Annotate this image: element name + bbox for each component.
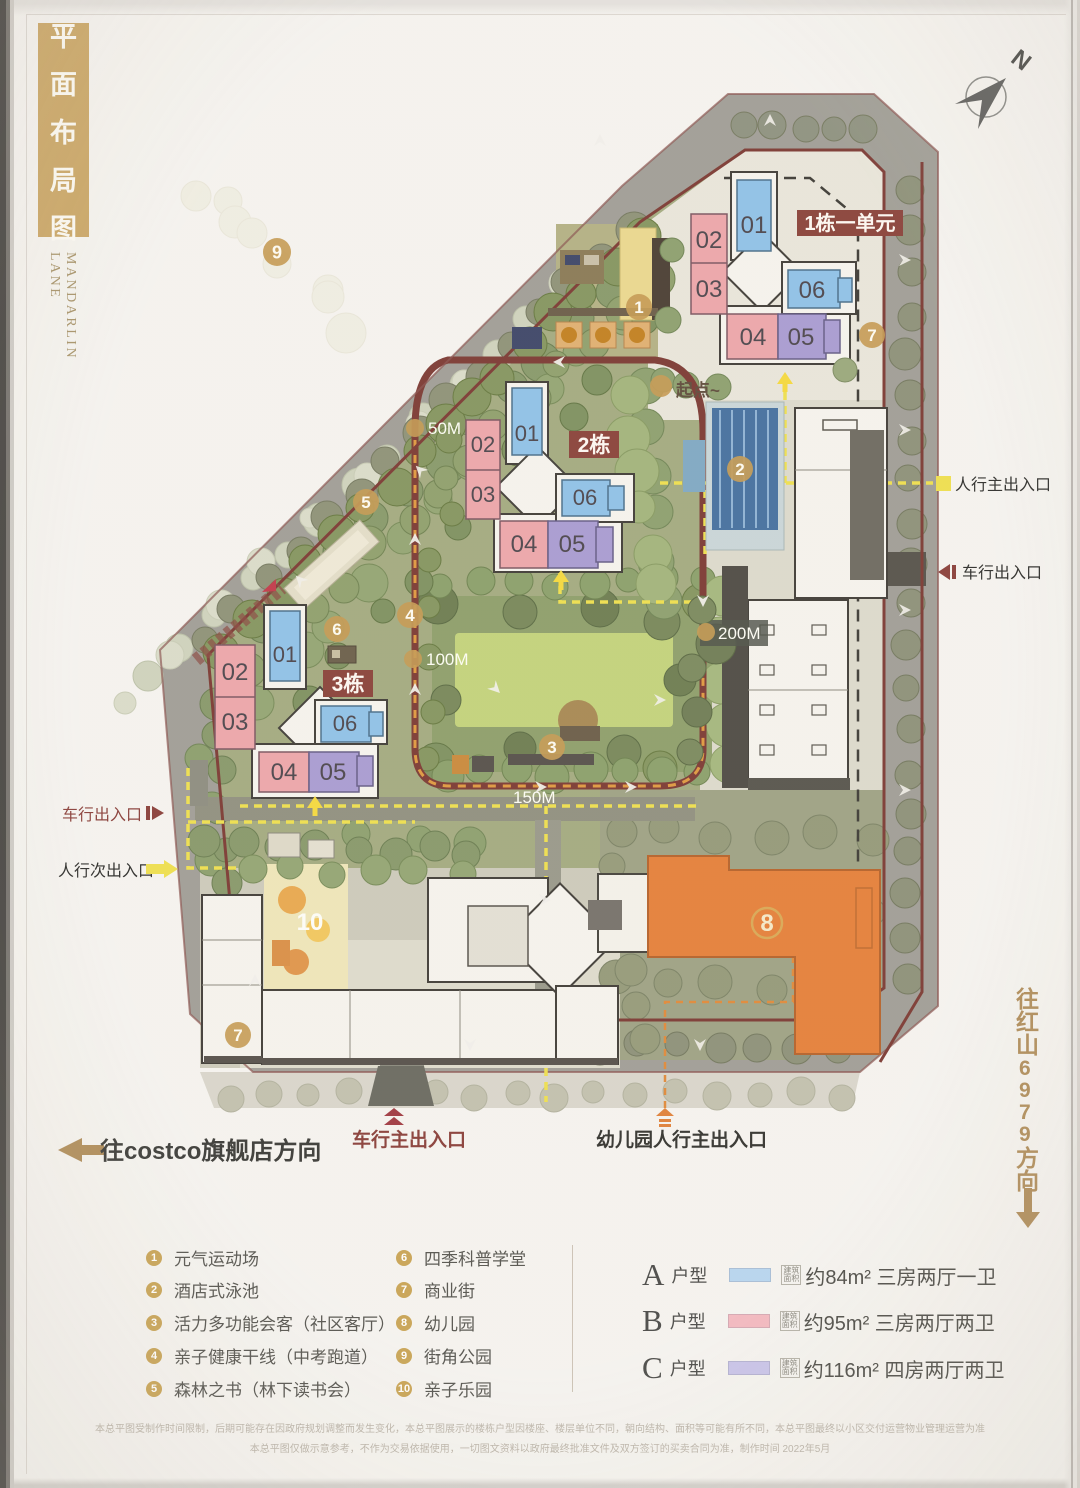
svg-text:起点~: 起点~	[675, 380, 720, 400]
svg-text:100M: 100M	[426, 650, 469, 669]
svg-text:05: 05	[320, 759, 347, 786]
svg-text:01: 01	[515, 421, 539, 446]
svg-text:01: 01	[741, 212, 768, 239]
svg-text:车行出入口: 车行出入口	[962, 564, 1042, 582]
svg-text:8: 8	[760, 910, 773, 937]
svg-text:05: 05	[559, 531, 586, 558]
svg-text:6: 6	[332, 620, 341, 639]
svg-text:2栋: 2栋	[578, 433, 611, 457]
svg-text:N: N	[1006, 44, 1036, 76]
svg-text:02: 02	[696, 227, 723, 254]
svg-text:7: 7	[867, 326, 876, 345]
svg-text:4: 4	[405, 606, 415, 625]
svg-text:2: 2	[735, 460, 744, 479]
svg-text:02: 02	[471, 432, 495, 457]
svg-text:车行出入口: 车行出入口	[62, 806, 142, 824]
svg-text:200M: 200M	[718, 624, 761, 643]
svg-text:03: 03	[222, 709, 249, 736]
svg-text:10: 10	[297, 909, 324, 936]
svg-text:5: 5	[361, 493, 370, 512]
svg-text:往costco旗舰店方向: 往costco旗舰店方向	[100, 1137, 321, 1165]
svg-text:3栋: 3栋	[332, 672, 365, 696]
svg-text:05: 05	[788, 324, 815, 351]
svg-text:06: 06	[799, 277, 826, 304]
svg-text:06: 06	[333, 711, 357, 736]
svg-text:幼儿园人行主出入口: 幼儿园人行主出入口	[596, 1128, 767, 1151]
svg-text:03: 03	[471, 482, 495, 507]
svg-text:人行主出入口: 人行主出入口	[955, 476, 1051, 494]
svg-text:150M: 150M	[513, 788, 556, 807]
svg-text:03: 03	[696, 276, 723, 303]
svg-text:06: 06	[573, 485, 597, 510]
svg-text:3: 3	[547, 738, 556, 757]
svg-text:人行次出入口: 人行次出入口	[58, 862, 154, 880]
svg-text:9: 9	[272, 242, 282, 262]
svg-text:04: 04	[511, 531, 538, 558]
svg-text:7: 7	[233, 1026, 242, 1045]
svg-text:02: 02	[222, 659, 249, 686]
svg-text:1: 1	[634, 298, 643, 317]
svg-text:车行主出入口: 车行主出入口	[352, 1128, 466, 1151]
svg-text:1栋一单元: 1栋一单元	[804, 211, 895, 235]
svg-text:04: 04	[740, 324, 767, 351]
svg-text:50M: 50M	[428, 419, 461, 438]
svg-text:04: 04	[271, 759, 298, 786]
svg-text:01: 01	[273, 642, 297, 667]
